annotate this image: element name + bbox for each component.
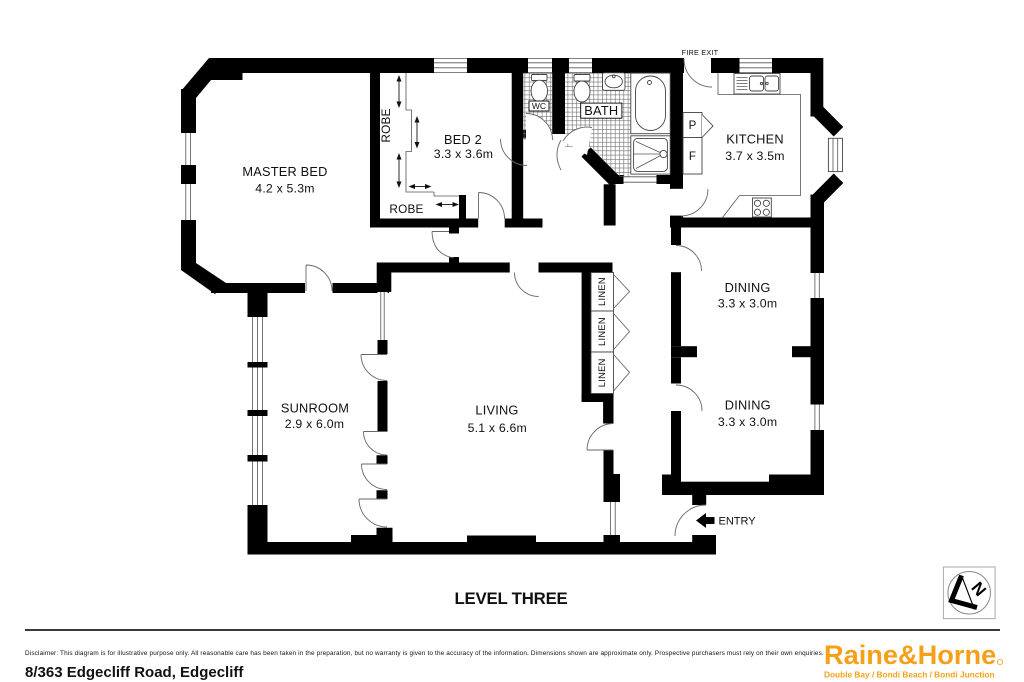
svg-text:MASTER BED: MASTER BED	[242, 164, 327, 179]
svg-text:ENTRY: ENTRY	[719, 516, 757, 528]
svg-text:3.7 x 3.5m: 3.7 x 3.5m	[725, 149, 784, 163]
svg-text:3.3 x 3.0m: 3.3 x 3.0m	[718, 415, 777, 429]
svg-text:ROBE: ROBE	[379, 108, 393, 142]
svg-text:BED 2: BED 2	[444, 132, 482, 147]
svg-text:5.1 x 6.6m: 5.1 x 6.6m	[468, 421, 527, 435]
svg-text:8/363 Edgecliff Road, Edgeclif: 8/363 Edgecliff Road, Edgecliff	[25, 664, 244, 681]
svg-text:FIRE EXIT: FIRE EXIT	[682, 48, 719, 57]
svg-text:KITCHEN: KITCHEN	[726, 132, 784, 147]
svg-text:3.3 x 3.0m: 3.3 x 3.0m	[718, 297, 777, 311]
svg-text:P: P	[689, 120, 697, 132]
svg-text:LINEN: LINEN	[597, 317, 607, 346]
svg-text:3.3 x 3.6m: 3.3 x 3.6m	[434, 147, 493, 161]
svg-text:4.2 x 5.3m: 4.2 x 5.3m	[255, 182, 314, 196]
svg-text:BATH: BATH	[584, 103, 618, 118]
svg-text:DINING: DINING	[725, 398, 771, 413]
svg-text:2.9 x 6.0m: 2.9 x 6.0m	[285, 417, 344, 431]
svg-text:Raine&Horne: Raine&Horne	[824, 639, 996, 670]
svg-text:ROBE: ROBE	[389, 202, 423, 216]
svg-text:LIVING: LIVING	[475, 403, 518, 418]
svg-text:Double Bay / Bondi Beach / Bon: Double Bay / Bondi Beach / Bondi Junctio…	[824, 670, 995, 680]
svg-text:Disclaimer: This diagram is fo: Disclaimer: This diagram is for illustra…	[25, 650, 824, 657]
svg-text:LEVEL THREE: LEVEL THREE	[454, 589, 567, 608]
svg-text:SUNROOM: SUNROOM	[281, 401, 349, 416]
svg-text:DINING: DINING	[725, 280, 771, 295]
svg-text:WC: WC	[532, 101, 546, 111]
svg-text:F: F	[689, 151, 696, 163]
svg-text:LINEN: LINEN	[597, 277, 607, 306]
svg-text:LINEN: LINEN	[597, 358, 607, 387]
